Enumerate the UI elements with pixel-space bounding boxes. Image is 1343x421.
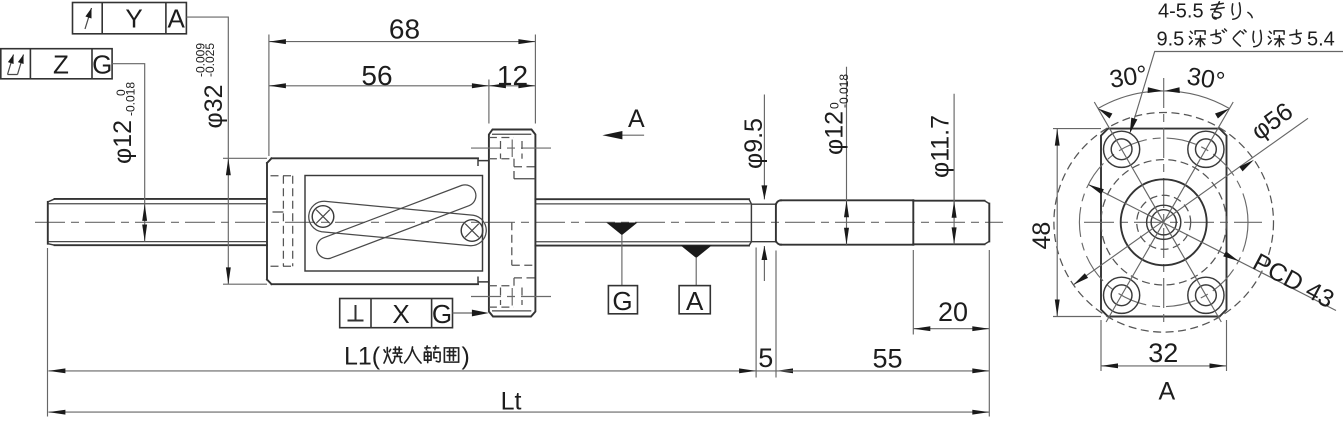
svg-text:L1(: L1(: [344, 343, 381, 371]
svg-text:68: 68: [389, 13, 420, 44]
svg-text:φ11.7: φ11.7: [927, 115, 955, 178]
svg-text:Z: Z: [53, 50, 69, 80]
svg-text:A: A: [686, 286, 704, 316]
svg-text:Lt: Lt: [501, 388, 522, 416]
svg-text:A: A: [168, 4, 186, 34]
svg-text:A: A: [628, 105, 645, 133]
svg-text:φ9.5: φ9.5: [740, 118, 768, 169]
svg-text:56: 56: [361, 60, 392, 91]
svg-text:φ12: φ12: [821, 111, 849, 155]
svg-text:5: 5: [758, 343, 773, 373]
svg-text:20: 20: [938, 297, 968, 327]
svg-text:-0.018: -0.018: [837, 74, 851, 108]
svg-text:X: X: [392, 299, 409, 329]
svg-text:12: 12: [497, 60, 528, 91]
svg-text:4-5.5: 4-5.5: [1158, 1, 1204, 23]
svg-text:-0.025: -0.025: [203, 43, 217, 77]
svg-text:G: G: [92, 50, 112, 80]
svg-text:9.5: 9.5: [1157, 29, 1185, 51]
svg-text:32: 32: [1148, 338, 1178, 368]
svg-text:G: G: [432, 299, 452, 329]
svg-text:48: 48: [1028, 222, 1056, 250]
svg-text:-0.018: -0.018: [124, 82, 138, 116]
svg-text:Y: Y: [125, 4, 142, 34]
svg-text:55: 55: [872, 343, 902, 373]
svg-text:): ): [462, 343, 470, 371]
svg-text:G: G: [612, 286, 632, 316]
svg-text:30°: 30°: [1185, 62, 1227, 96]
svg-text:A: A: [1158, 378, 1175, 406]
svg-text:5.4: 5.4: [1307, 29, 1335, 51]
svg-text:φ12: φ12: [109, 120, 137, 164]
svg-text:φ32: φ32: [200, 84, 228, 128]
